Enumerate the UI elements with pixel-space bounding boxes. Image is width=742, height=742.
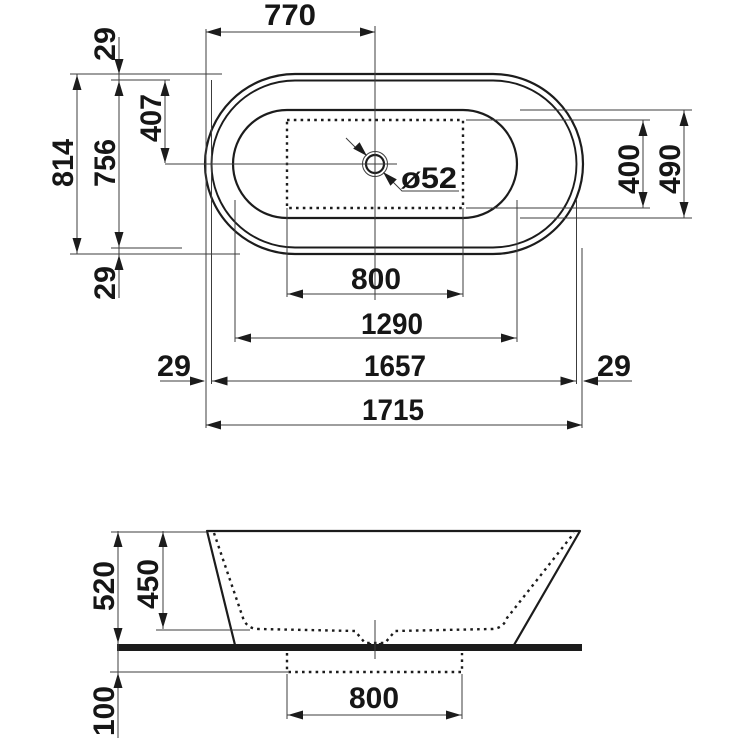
technical-drawing: 770 29 814 756 407 29 ø52 400 490 800 12… (0, 0, 742, 742)
dim-756-label: 756 (89, 139, 122, 187)
dim-800-side-label: 800 (349, 682, 399, 715)
dim-814-label: 814 (47, 139, 80, 187)
dim-800-top-label: 800 (351, 263, 401, 296)
dim-29-bottom-label: 29 (89, 266, 122, 300)
dim-400-label: 400 (613, 144, 646, 194)
drawing-canvas: 770 29 814 756 407 29 ø52 400 490 800 12… (0, 0, 742, 742)
dim-407-label: 407 (135, 94, 168, 142)
dim-29-left-label: 29 (157, 350, 191, 383)
drain-diameter-label: ø52 (401, 162, 457, 195)
dim-1715-label: 1715 (362, 394, 424, 427)
dim-29-right-label: 29 (597, 350, 631, 383)
dim-1290-label: 1290 (361, 308, 423, 341)
dim-1657-label: 1657 (364, 350, 426, 383)
dim-450-label: 450 (132, 559, 165, 609)
dim-520-label: 520 (88, 561, 121, 611)
dim-100-label: 100 (88, 686, 121, 736)
dim-770-label: 770 (264, 0, 316, 32)
floor-line (117, 644, 582, 651)
dim-490-label: 490 (654, 144, 687, 194)
dim-29-top-label: 29 (89, 27, 122, 61)
